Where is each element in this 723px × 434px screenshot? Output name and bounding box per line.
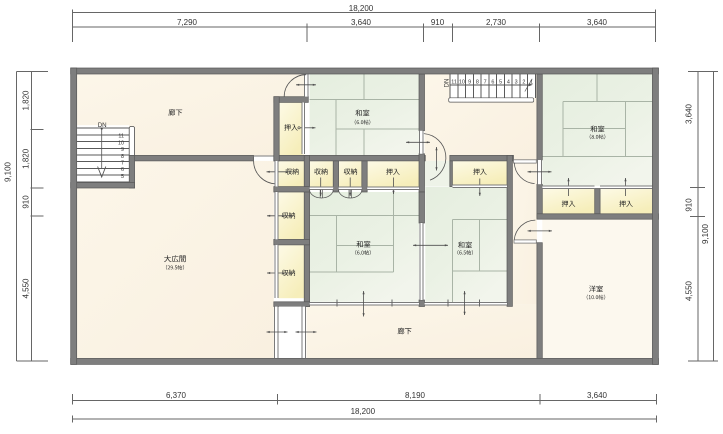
svg-text:1,820: 1,820	[22, 148, 31, 169]
svg-text:2,730: 2,730	[486, 18, 507, 27]
svg-text:6: 6	[121, 167, 124, 173]
svg-text:3,640: 3,640	[587, 391, 608, 400]
svg-text:DN: DN	[445, 79, 451, 88]
svg-text:8,190: 8,190	[405, 391, 426, 400]
svg-text:3,640: 3,640	[685, 103, 694, 124]
svg-text:18,200: 18,200	[351, 407, 376, 416]
svg-text:4,550: 4,550	[22, 278, 31, 299]
svg-text:18,200: 18,200	[349, 4, 374, 13]
svg-text:10: 10	[118, 140, 124, 146]
svg-text:910: 910	[22, 195, 31, 209]
svg-text:3,640: 3,640	[587, 18, 608, 27]
svg-text:5: 5	[121, 174, 124, 180]
svg-text:7: 7	[121, 161, 124, 167]
svg-text:9,100: 9,100	[4, 161, 13, 182]
svg-text:11: 11	[118, 134, 124, 140]
svg-text:9: 9	[121, 147, 124, 153]
svg-text:1,820: 1,820	[22, 90, 31, 111]
svg-text:910: 910	[431, 18, 445, 27]
svg-text:9,100: 9,100	[701, 223, 710, 244]
svg-text:3,640: 3,640	[351, 18, 372, 27]
svg-text:7,290: 7,290	[177, 18, 198, 27]
svg-text:8: 8	[121, 154, 124, 160]
svg-text:4,550: 4,550	[685, 280, 694, 301]
svg-text:910: 910	[685, 198, 694, 212]
svg-text:6,370: 6,370	[166, 391, 187, 400]
